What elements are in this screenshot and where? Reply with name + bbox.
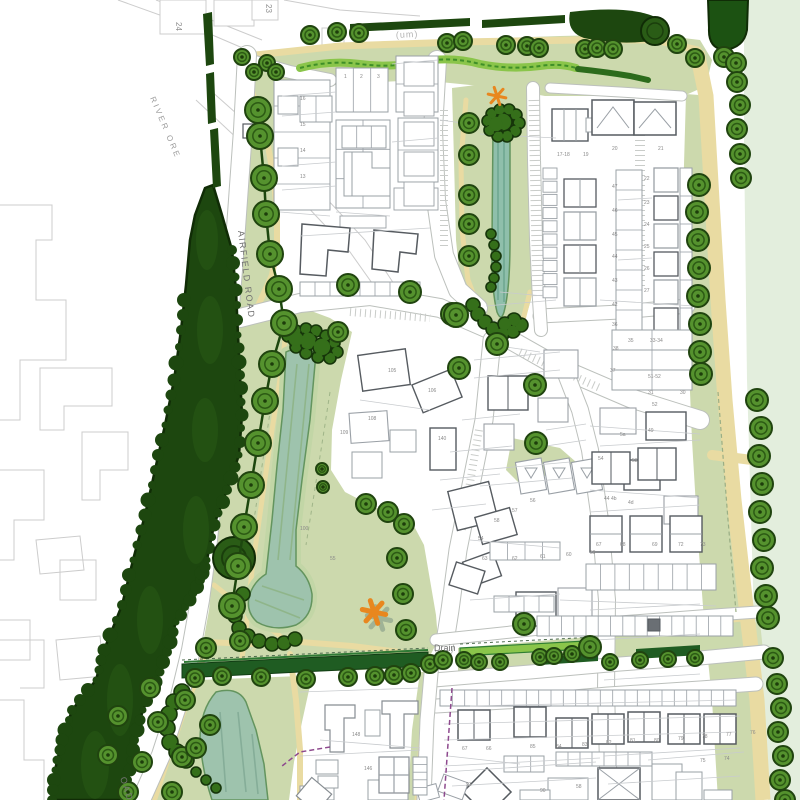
svg-text:106: 106 [428,388,437,394]
svg-text:67: 67 [462,746,468,752]
svg-text:24: 24 [174,22,183,31]
svg-text:17-18: 17-18 [557,152,570,158]
svg-text:60: 60 [566,552,572,558]
svg-text:52: 52 [652,402,658,408]
svg-text:78: 78 [702,734,708,740]
svg-text:77: 77 [726,732,732,738]
svg-text:57: 57 [512,508,518,514]
svg-text:74: 74 [724,756,730,762]
svg-text:67: 67 [596,542,602,548]
svg-text:100: 100 [300,526,309,532]
svg-text:146: 146 [364,766,373,772]
svg-text:76: 76 [750,730,756,736]
svg-text:58: 58 [494,518,500,524]
svg-text:(um): (um) [396,29,419,40]
svg-text:108: 108 [368,416,377,422]
svg-text:85: 85 [530,744,536,750]
svg-text:46: 46 [612,208,618,214]
svg-text:23: 23 [644,200,650,206]
svg-text:23: 23 [264,4,273,13]
svg-text:82: 82 [606,740,612,746]
svg-text:33-34: 33-34 [650,338,663,344]
svg-text:81: 81 [630,738,636,744]
svg-text:62: 62 [512,556,518,562]
svg-text:35: 35 [628,338,634,344]
svg-text:16: 16 [300,96,306,102]
svg-text:53: 53 [632,458,638,464]
svg-text:25: 25 [644,244,650,250]
svg-text:54: 54 [598,456,604,462]
svg-text:75: 75 [700,758,706,764]
svg-text:21: 21 [658,146,664,152]
svg-text:3: 3 [377,74,380,80]
svg-text:140: 140 [438,436,447,442]
svg-text:43: 43 [612,278,618,284]
svg-text:42: 42 [612,302,618,308]
svg-text:30: 30 [680,390,686,396]
svg-text:61: 61 [540,554,546,560]
svg-text:44: 44 [612,254,618,260]
svg-text:73: 73 [700,542,706,548]
svg-text:91: 91 [466,782,472,788]
svg-text:22: 22 [644,176,650,182]
svg-text:56: 56 [530,498,536,504]
svg-text:4d: 4d [628,500,634,506]
svg-text:47: 47 [612,184,618,190]
svg-text:58: 58 [576,784,582,790]
svg-text:31: 31 [648,390,654,396]
svg-text:59: 59 [590,550,596,556]
svg-text:38: 38 [613,346,619,352]
svg-text:14: 14 [300,148,306,154]
svg-text:83: 83 [582,742,588,748]
svg-text:27: 27 [644,288,650,294]
svg-text:5a: 5a [620,432,626,438]
svg-text:63: 63 [482,556,488,562]
svg-text:66: 66 [486,746,492,752]
svg-text:105: 105 [388,368,397,374]
svg-text:55: 55 [330,556,336,562]
svg-text:26: 26 [644,266,650,272]
svg-text:20: 20 [612,146,618,152]
svg-text:2: 2 [360,74,363,80]
svg-text:51-52: 51-52 [648,374,661,380]
svg-text:13: 13 [300,174,306,180]
svg-text:69: 69 [652,542,658,548]
svg-text:45: 45 [612,232,618,238]
svg-text:36: 36 [612,322,618,328]
svg-text:72: 72 [678,542,684,548]
svg-text:49: 49 [648,428,654,434]
svg-text:109: 109 [340,430,349,436]
svg-text:19: 19 [583,152,589,158]
svg-text:37: 37 [610,368,616,374]
svg-text:44 4b: 44 4b [604,496,617,502]
svg-text:54: 54 [478,536,484,542]
svg-text:68: 68 [620,542,626,548]
svg-text:24: 24 [644,222,650,228]
svg-text:148: 148 [352,732,361,738]
svg-text:79: 79 [678,736,684,742]
svg-text:80: 80 [654,738,660,744]
svg-text:90: 90 [540,788,546,794]
svg-text:15: 15 [300,122,306,128]
svg-text:Drain: Drain [434,643,456,653]
svg-text:84: 84 [556,744,562,750]
svg-text:1: 1 [344,74,347,80]
